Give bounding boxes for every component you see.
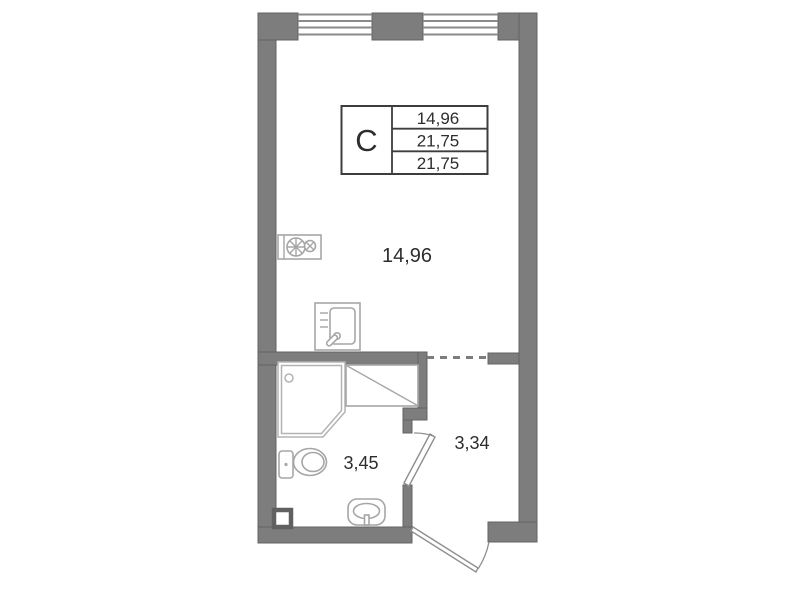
washbasin-icon xyxy=(348,499,385,525)
wall-bottom-right-block xyxy=(488,522,537,542)
toilet-button xyxy=(284,463,287,466)
legend-row-value: 21,75 xyxy=(417,132,460,151)
entrance-door-leaf xyxy=(411,527,478,572)
wall-left xyxy=(258,13,276,543)
entrance-door-swing-arc xyxy=(478,542,489,569)
washbasin-tap xyxy=(365,515,370,525)
stove-icon xyxy=(278,235,321,259)
wall-bathroom-door-jamb-bottom xyxy=(403,485,412,527)
bathroom-door xyxy=(404,433,435,486)
wall-right xyxy=(519,13,537,542)
toilet-icon xyxy=(279,449,327,479)
wall-top-left-block xyxy=(258,13,298,40)
floor-plan-canvas: С 14,96 21,75 21,75 14,96 3,45 3,34 xyxy=(0,0,799,600)
floor-plan: С 14,96 21,75 21,75 14,96 3,45 3,34 xyxy=(0,0,799,600)
wall-top-pier xyxy=(372,13,423,40)
wall-bathroom-right xyxy=(418,352,427,408)
wall-hallway-stub xyxy=(488,353,519,364)
window-right xyxy=(423,15,498,35)
burner-cross xyxy=(288,239,305,256)
wall-bottom xyxy=(258,527,412,543)
toilet-seat xyxy=(302,453,324,472)
legend-type-label: С xyxy=(355,123,377,158)
bathroom-area-label: 3,45 xyxy=(343,453,378,473)
legend-row-value: 21,75 xyxy=(417,154,460,173)
hallway-area-label: 3,34 xyxy=(454,433,489,453)
legend-table: С 14,96 21,75 21,75 xyxy=(342,106,488,174)
shower-drain xyxy=(285,374,293,382)
legend-row-value: 14,96 xyxy=(417,109,460,128)
window-left xyxy=(298,15,372,35)
shower-icon xyxy=(278,362,345,437)
vent-duct-icon xyxy=(274,510,291,527)
bathroom-door-leaf xyxy=(404,434,435,486)
wall-bathroom-door-jamb-top xyxy=(403,420,412,433)
wall-bathroom-jog xyxy=(403,408,427,420)
entrance-door xyxy=(411,527,489,572)
kitchen-sink-icon xyxy=(315,303,360,350)
living-area-label: 14,96 xyxy=(382,245,432,267)
closet-icon xyxy=(346,365,418,406)
